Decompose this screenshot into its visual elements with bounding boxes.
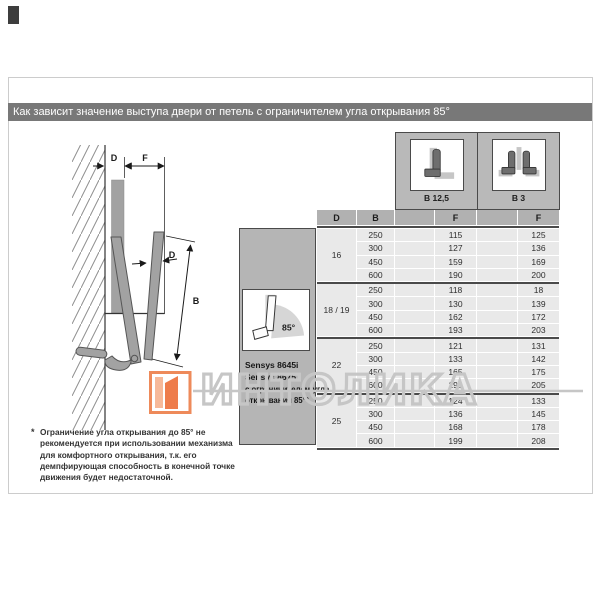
table-cell: 131: [518, 339, 559, 351]
twin-hinge-icon: [492, 139, 546, 191]
angle-limiter-icon: 85°: [242, 289, 310, 351]
table-cell: 450: [357, 311, 394, 323]
product-name: Sensys 8675: [245, 372, 296, 382]
table-cell: 130: [435, 297, 476, 309]
table-cell-empty: [477, 311, 517, 323]
product-sidebar: 85° Sensys 8645i Sensys 8675 с ограничит…: [239, 228, 316, 445]
table-cell: 250: [357, 284, 394, 296]
table-cell: 600: [357, 269, 394, 281]
table-cell: 300: [357, 408, 394, 420]
table-cell-empty: [477, 421, 517, 433]
product-name: Sensys 8645i: [245, 360, 298, 370]
table-cell: 600: [357, 324, 394, 336]
table-cell: 196: [435, 379, 476, 391]
table-cell: 250: [357, 339, 394, 351]
table-cell-empty: [477, 284, 517, 296]
table-cell: 18: [518, 284, 559, 296]
table-cell: 136: [435, 408, 476, 420]
table-cell-empty: [395, 421, 434, 433]
table-cell-empty: [395, 311, 434, 323]
table-cell: 178: [518, 421, 559, 433]
table-cell-empty: [395, 379, 434, 391]
table-header-row: DBFF: [317, 210, 559, 228]
table-cell: 300: [357, 297, 394, 309]
hinge-variant-overlay: B 12,5: [396, 133, 478, 209]
hinge-variant-panel: B 12,5 B 3: [395, 132, 560, 210]
table-group-d-18/19: 18 / 19250118183001301394501621726001932…: [317, 284, 559, 339]
table-cell-empty: [477, 256, 517, 268]
table-cell: 118: [435, 284, 476, 296]
table-cell: 193: [435, 324, 476, 336]
column-header: F: [435, 210, 476, 225]
table-cell-empty: [477, 297, 517, 309]
table-cell: 115: [435, 229, 476, 241]
footnote-line: Ограничение угла открывания до 85° не: [40, 427, 235, 438]
table-cell: 133: [518, 395, 559, 407]
hinge-variant-twin: B 3: [478, 133, 559, 209]
footnote: Ограничение угла открывания до 85° нерек…: [40, 427, 235, 483]
table-cell: 600: [357, 379, 394, 391]
table-cell: 250: [357, 229, 394, 241]
table-cell: 125: [518, 229, 559, 241]
table-cell: 450: [357, 256, 394, 268]
column-header-empty: [395, 210, 434, 225]
dimension-table: 1625011512530012713645015916960019020018…: [317, 229, 559, 450]
table-group-d-22: 22250121131300133142450165175600196205: [317, 339, 559, 394]
table-cell: 250: [357, 395, 394, 407]
column-header: B: [357, 210, 394, 225]
table-cell-empty: [477, 408, 517, 420]
table-cell-empty: [395, 242, 434, 254]
table-cell: 165: [435, 366, 476, 378]
table-cell-empty: [477, 434, 517, 446]
table-cell: 300: [357, 353, 394, 365]
table-cell-empty: [395, 324, 434, 336]
angle-label: 85°: [282, 323, 296, 333]
table-cell: 127: [435, 242, 476, 254]
table-cell: 139: [518, 297, 559, 309]
table-cell-empty: [395, 366, 434, 378]
table-cell-empty: [477, 324, 517, 336]
table-cell: 159: [435, 256, 476, 268]
table-cell-empty: [395, 339, 434, 351]
table-cell: 169: [518, 256, 559, 268]
table-cell: 25: [317, 395, 356, 447]
table-cell-empty: [395, 256, 434, 268]
table-group-d-25: 25250124133300136145450168178600199208: [317, 395, 559, 450]
table-cell: 203: [518, 324, 559, 336]
table-cell: 124: [435, 395, 476, 407]
table-cell: 199: [435, 434, 476, 446]
product-note: с ограничителем угла: [245, 385, 329, 394]
table-cell: 205: [518, 379, 559, 391]
catalog-page: Как зависит значение выступа двери от пе…: [0, 0, 600, 600]
table-cell: 22: [317, 339, 356, 391]
table-cell: 208: [518, 434, 559, 446]
footnote-marker: *: [31, 427, 35, 437]
footnote-line: демпфирующая способность в конечной точк…: [40, 461, 235, 472]
table-cell: 121: [435, 339, 476, 351]
table-cell-empty: [477, 366, 517, 378]
table-group-d-16: 16250115125300127136450159169600190200: [317, 229, 559, 284]
column-header-empty: [477, 210, 517, 225]
table-cell: 600: [357, 434, 394, 446]
column-header: D: [317, 210, 356, 225]
table-cell: 162: [435, 311, 476, 323]
table-cell-empty: [477, 242, 517, 254]
table-cell: 200: [518, 269, 559, 281]
table-cell: 133: [435, 353, 476, 365]
table-cell-empty: [395, 297, 434, 309]
table-cell: 168: [435, 421, 476, 433]
column-header: F: [518, 210, 559, 225]
footnote-line: рекомендуется при использовании механизм…: [40, 438, 235, 449]
table-cell-empty: [477, 269, 517, 281]
table-cell: 175: [518, 366, 559, 378]
table-cell: 145: [518, 408, 559, 420]
table-cell: 450: [357, 366, 394, 378]
footnote-line: движения будет недостаточной.: [40, 472, 235, 483]
table-cell: 172: [518, 311, 559, 323]
table-cell-empty: [477, 339, 517, 351]
table-cell: 142: [518, 353, 559, 365]
table-cell-empty: [395, 269, 434, 281]
page-title: Как зависит значение выступа двери от пе…: [8, 103, 592, 121]
table-cell: 300: [357, 242, 394, 254]
hinge-variant-label: B 3: [512, 193, 525, 203]
table-cell-empty: [477, 229, 517, 241]
table-cell-empty: [477, 353, 517, 365]
corner-mark: [8, 6, 19, 24]
table-cell-empty: [395, 353, 434, 365]
table-cell-empty: [477, 395, 517, 407]
table-cell-empty: [395, 408, 434, 420]
table-cell-empty: [395, 434, 434, 446]
table-cell: 450: [357, 421, 394, 433]
table-cell-empty: [395, 284, 434, 296]
table-cell-empty: [395, 229, 434, 241]
table-cell: 136: [518, 242, 559, 254]
table-cell: 190: [435, 269, 476, 281]
overlay-hinge-icon: [410, 139, 464, 191]
table-cell: 18 / 19: [317, 284, 356, 336]
table-cell: 16: [317, 229, 356, 281]
footnote-line: для комфортного открывания, т.к. его: [40, 450, 235, 461]
hinge-variant-label: B 12,5: [424, 193, 449, 203]
table-cell-empty: [395, 395, 434, 407]
table-cell-empty: [477, 379, 517, 391]
product-note: открывания 85°*: [245, 396, 309, 405]
